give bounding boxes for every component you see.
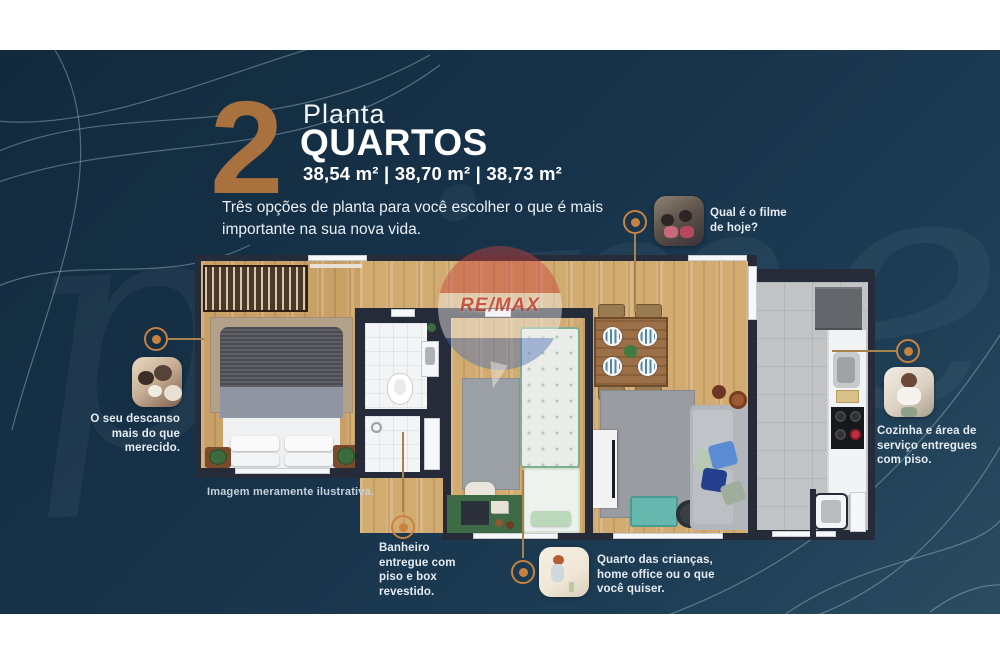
plan-subtitle-line1: Três opções de planta para você escolher… <box>222 197 603 219</box>
burner <box>835 429 846 440</box>
callout-filme-text: Qual é o filme de hoje? <box>710 206 805 235</box>
remax-logo-text: RE/MAX <box>443 295 557 317</box>
callout-connector <box>168 338 204 340</box>
master-bottom-window <box>235 468 330 474</box>
kids-pillow <box>531 511 571 526</box>
tv-screen <box>612 440 615 498</box>
service-door <box>850 492 866 532</box>
callout-marker-icon <box>391 515 415 539</box>
bathroom-door <box>424 418 440 470</box>
bathroom-door-gap <box>391 309 415 317</box>
background-panel: prime 2 Planta QUARTOS 38,54 m² | 38,70 … <box>0 50 1000 614</box>
dining-plate <box>603 357 622 376</box>
wardrobe-rack <box>203 265 308 312</box>
kids-rug <box>462 378 520 490</box>
bottom-window-3 <box>772 531 836 537</box>
dining-plate <box>638 357 657 376</box>
woman-cooking-photo <box>884 367 934 417</box>
callout-marker-icon <box>144 327 168 351</box>
shower-head <box>371 422 382 433</box>
kids-desk <box>461 501 489 525</box>
dining-chair <box>635 304 662 318</box>
callout-descanso-text: O seu descanso mais do que merecido. <box>88 412 180 456</box>
callout-marker-icon <box>623 210 647 234</box>
burner <box>835 411 846 422</box>
dining-plate <box>603 327 622 346</box>
child-playing-photo <box>539 547 589 597</box>
callout-marker-icon <box>896 339 920 363</box>
bottom-window-1 <box>473 533 558 539</box>
table-plant <box>624 345 637 358</box>
kids-book <box>491 501 508 513</box>
cutting-board <box>836 390 859 403</box>
bedroom-plant <box>205 447 231 468</box>
bed-pillow <box>285 453 333 466</box>
laundry-basin <box>821 500 841 523</box>
callout-connector <box>634 234 636 312</box>
bathroom-plant <box>427 323 436 332</box>
plan-subtitle: Três opções de planta para você escolher… <box>222 197 603 240</box>
living-side-window <box>748 266 757 320</box>
callout-connector <box>522 470 524 558</box>
bed-pillow <box>231 453 279 466</box>
master-bed-blanket <box>220 327 343 387</box>
callout-connector <box>402 432 404 512</box>
plan-subtitle-line2: importante na sua nova vida. <box>222 219 603 241</box>
bathroom-sink <box>425 347 435 365</box>
burner <box>850 411 861 422</box>
burner-red <box>850 429 861 440</box>
kitchen-sink-basin <box>837 357 855 383</box>
callout-connector <box>832 350 896 352</box>
plan-areas: 38,54 m² | 38,70 m² | 38,73 m² <box>303 163 562 185</box>
coffee-table <box>630 496 678 527</box>
family-movie-photo <box>654 196 704 246</box>
dining-plate <box>638 327 657 346</box>
dining-chair <box>598 304 625 318</box>
callout-marker-icon <box>511 560 535 584</box>
marketing-flyer: prime 2 Planta QUARTOS 38,54 m² | 38,70 … <box>0 0 1000 667</box>
master-bed-fold <box>220 387 343 418</box>
top-window-1 <box>308 255 367 261</box>
closet-shelf <box>310 264 362 268</box>
plan-title-bold: QUARTOS <box>300 122 488 164</box>
family-resting-photo <box>132 357 182 407</box>
bottom-window-2 <box>613 533 723 539</box>
plan-number: 2 <box>210 82 281 214</box>
fridge <box>815 287 862 330</box>
toilet-seat <box>394 379 406 395</box>
kids-living-wall <box>585 308 593 540</box>
bed-pillow <box>285 436 333 451</box>
callout-banheiro-text: Banheiro entregue com piso e box revesti… <box>379 541 474 599</box>
callout-quarto-text: Quarto das crianças, home office ou o qu… <box>597 553 727 597</box>
top-window-2 <box>688 255 747 261</box>
decor-tray <box>729 391 747 409</box>
kids-toys <box>495 519 503 527</box>
bed-pillow <box>231 436 279 451</box>
decor-bowl <box>712 385 726 399</box>
disclaimer-text: Imagem meramente ilustrativa. <box>207 486 374 498</box>
callout-cozinha-text: Cozinha e área de serviço entregues com … <box>877 424 982 468</box>
